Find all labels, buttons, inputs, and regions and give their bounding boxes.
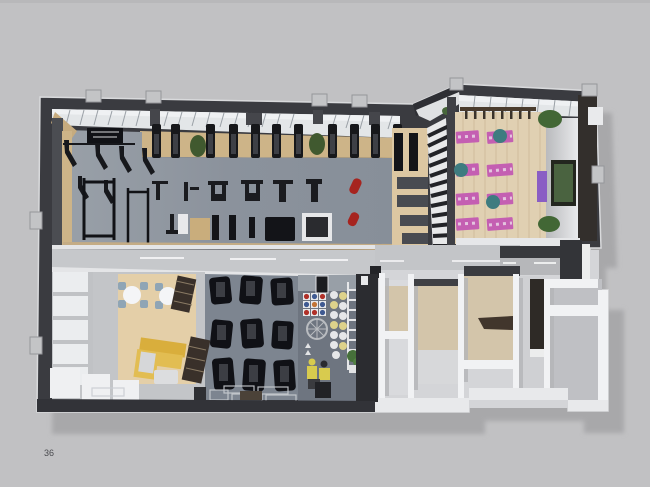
svg-text:36: 36 [44, 448, 54, 458]
